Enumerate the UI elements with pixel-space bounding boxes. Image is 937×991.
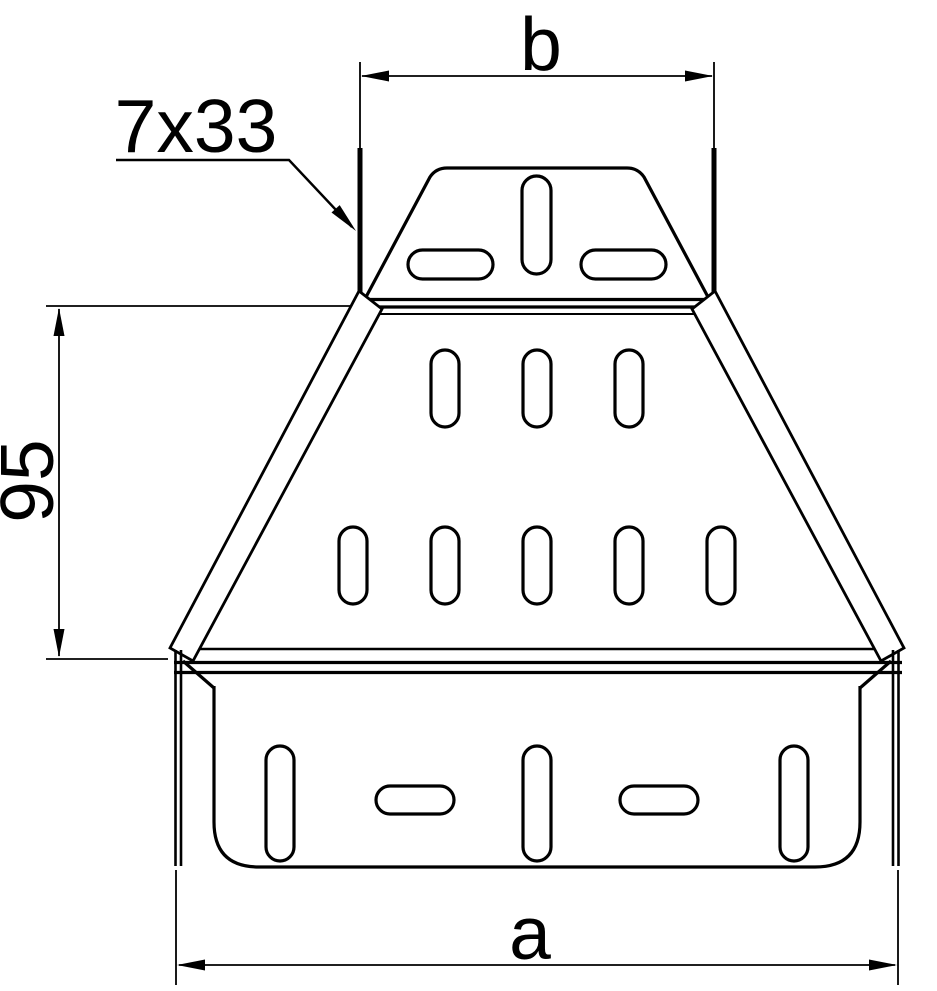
dim-b-label: b [520,2,562,86]
dimension-95: 95 [0,306,354,659]
left-slant-flange-band [170,291,382,661]
middle-lower-slot-row [339,527,735,604]
bottom-vertical-slot [523,746,551,861]
dimension-b: b [360,2,714,148]
perforation-slot [339,527,367,604]
dim-a-label: a [509,891,551,975]
reducer-drawing-canvas: b 95 7x33 [0,0,937,991]
middle-upper-slot-row [431,350,643,427]
perforation-slot [707,527,735,604]
bottom-vertical-slot [780,746,808,861]
slot-callout-leader [116,160,352,227]
top-left-horizontal-slot [408,250,493,279]
dim-95-arrow-top [54,308,65,336]
top-section [360,148,714,314]
dim-a-arrow-left [177,960,205,971]
dim-95-label: 95 [0,439,69,522]
bottom-horizontal-slot [376,786,454,814]
dimension-a: a [176,870,898,985]
slot-callout: 7x33 [115,84,356,231]
perforation-slot [523,350,551,427]
bottom-horizontal-slot [620,786,698,814]
perforation-slot [615,527,643,604]
middle-section [170,291,904,673]
dim-b-arrow-left [361,71,389,82]
bottom-section [176,650,899,867]
perforation-slot [615,350,643,427]
right-slant-flange-band [692,291,904,661]
bottom-left-corner-chamfer [183,661,214,688]
bottom-right-corner-chamfer [860,661,891,688]
bottom-slot-row [266,746,808,861]
dim-95-arrow-bottom [54,629,65,657]
top-center-vertical-slot [522,176,551,274]
top-right-horizontal-slot [581,250,666,279]
perforation-slot [431,527,459,604]
dim-b-arrow-right [685,71,713,82]
perforation-slot [523,527,551,604]
technical-drawing: b 95 7x33 [0,0,937,991]
slot-callout-label: 7x33 [115,84,278,168]
bottom-vertical-slot [266,746,294,861]
dim-a-arrow-right [869,960,897,971]
perforation-slot [431,350,459,427]
